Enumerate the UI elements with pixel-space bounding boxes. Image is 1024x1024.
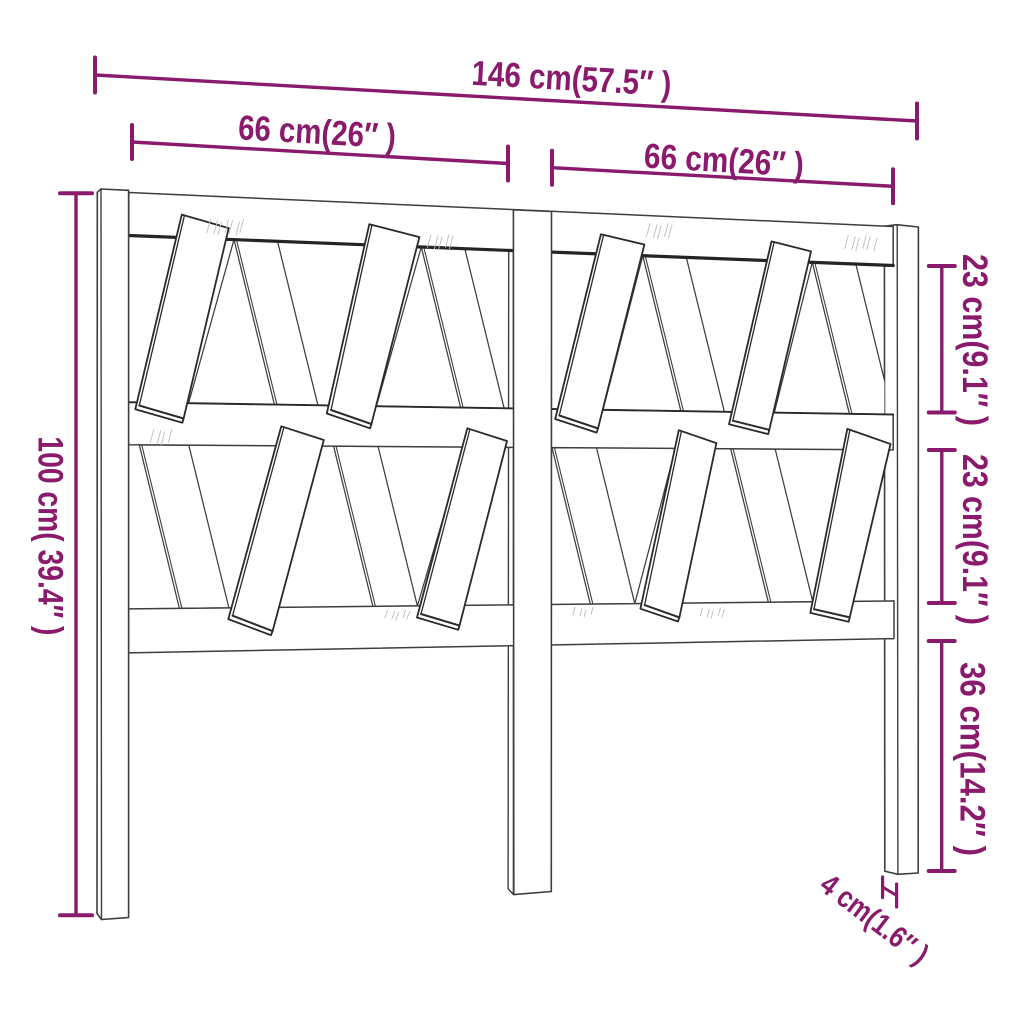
svg-text:36 cm(14.2″ ): 36 cm(14.2″ ) bbox=[952, 662, 991, 856]
svg-text:23 cm(9.1″ ): 23 cm(9.1″ ) bbox=[955, 254, 994, 426]
svg-text:100 cm( 39.4″ ): 100 cm( 39.4″ ) bbox=[31, 436, 70, 635]
svg-text:23 cm(9.1″ ): 23 cm(9.1″ ) bbox=[955, 454, 994, 625]
